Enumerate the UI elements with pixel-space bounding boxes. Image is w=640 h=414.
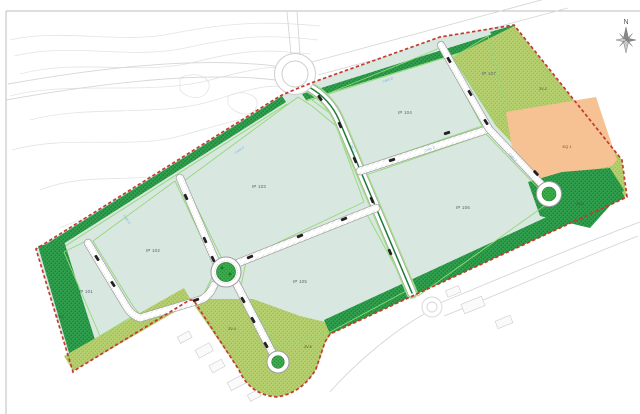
parcel-label-ip101: IP 101 (79, 289, 93, 294)
parcel-label-ip103: IP 103 (252, 184, 266, 189)
parcel-label-ip106: IP 106 (456, 205, 470, 210)
green-label-zv3: ZV-3 (576, 202, 583, 206)
parcel-label-ip104: IP 104 (398, 110, 412, 115)
existing-roundabout-south (422, 297, 442, 317)
site-plan-drawing: IP 101 IP 102 IP 103 IP 104 IP 105 IP 10… (0, 0, 640, 414)
green-label-zv2: ZV-2 (539, 87, 546, 91)
roundabout-south (267, 351, 289, 373)
roundabout-north-existing (275, 54, 316, 95)
parcel-label-eq1: EQ 1 (562, 144, 572, 149)
site-plan-canvas: IP 101 IP 102 IP 103 IP 104 IP 105 IP 10… (0, 0, 640, 414)
green-label-zv5: ZV-5 (304, 345, 311, 349)
green-label-zv1: ZV-1 (56, 315, 63, 319)
north-compass-icon: N (616, 19, 636, 53)
roundabout-central (211, 257, 241, 287)
roundabout-east (537, 182, 562, 207)
parcel-label-ip107: IP 107 (482, 71, 496, 76)
green-label-zv4: ZV-4 (228, 327, 235, 331)
north-label: N (623, 19, 628, 26)
parcel-label-ip102: IP 102 (146, 248, 160, 253)
parcel-label-ip105: IP 105 (293, 279, 307, 284)
